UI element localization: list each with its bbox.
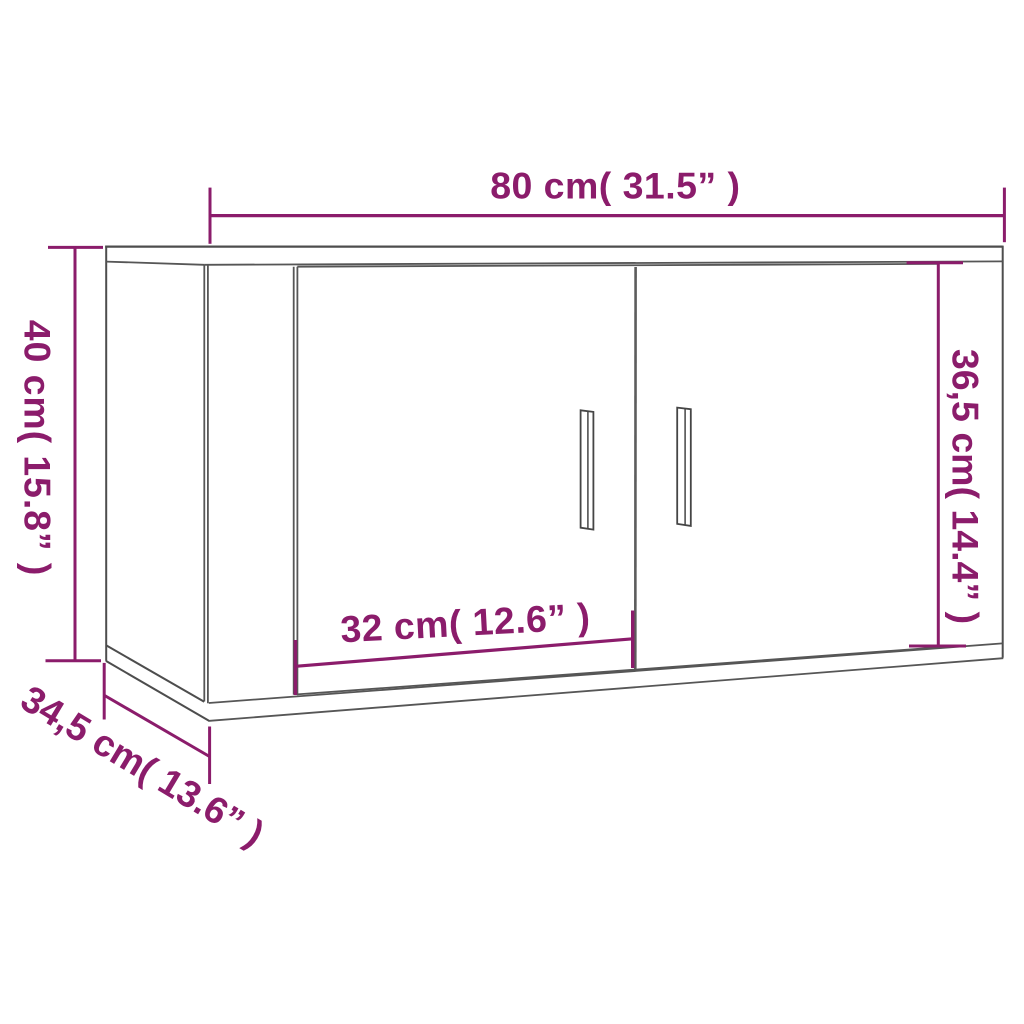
svg-text:80 cm( 31.5” ): 80 cm( 31.5” ) xyxy=(490,164,740,206)
svg-text:34,5 cm( 13.6” ): 34,5 cm( 13.6” ) xyxy=(14,677,271,855)
svg-text:40 cm( 15.8” ): 40 cm( 15.8” ) xyxy=(17,320,59,576)
svg-text:36,5 cm( 14.4” ): 36,5 cm( 14.4” ) xyxy=(945,349,987,624)
svg-text:32 cm( 12.6” ): 32 cm( 12.6” ) xyxy=(339,595,591,650)
